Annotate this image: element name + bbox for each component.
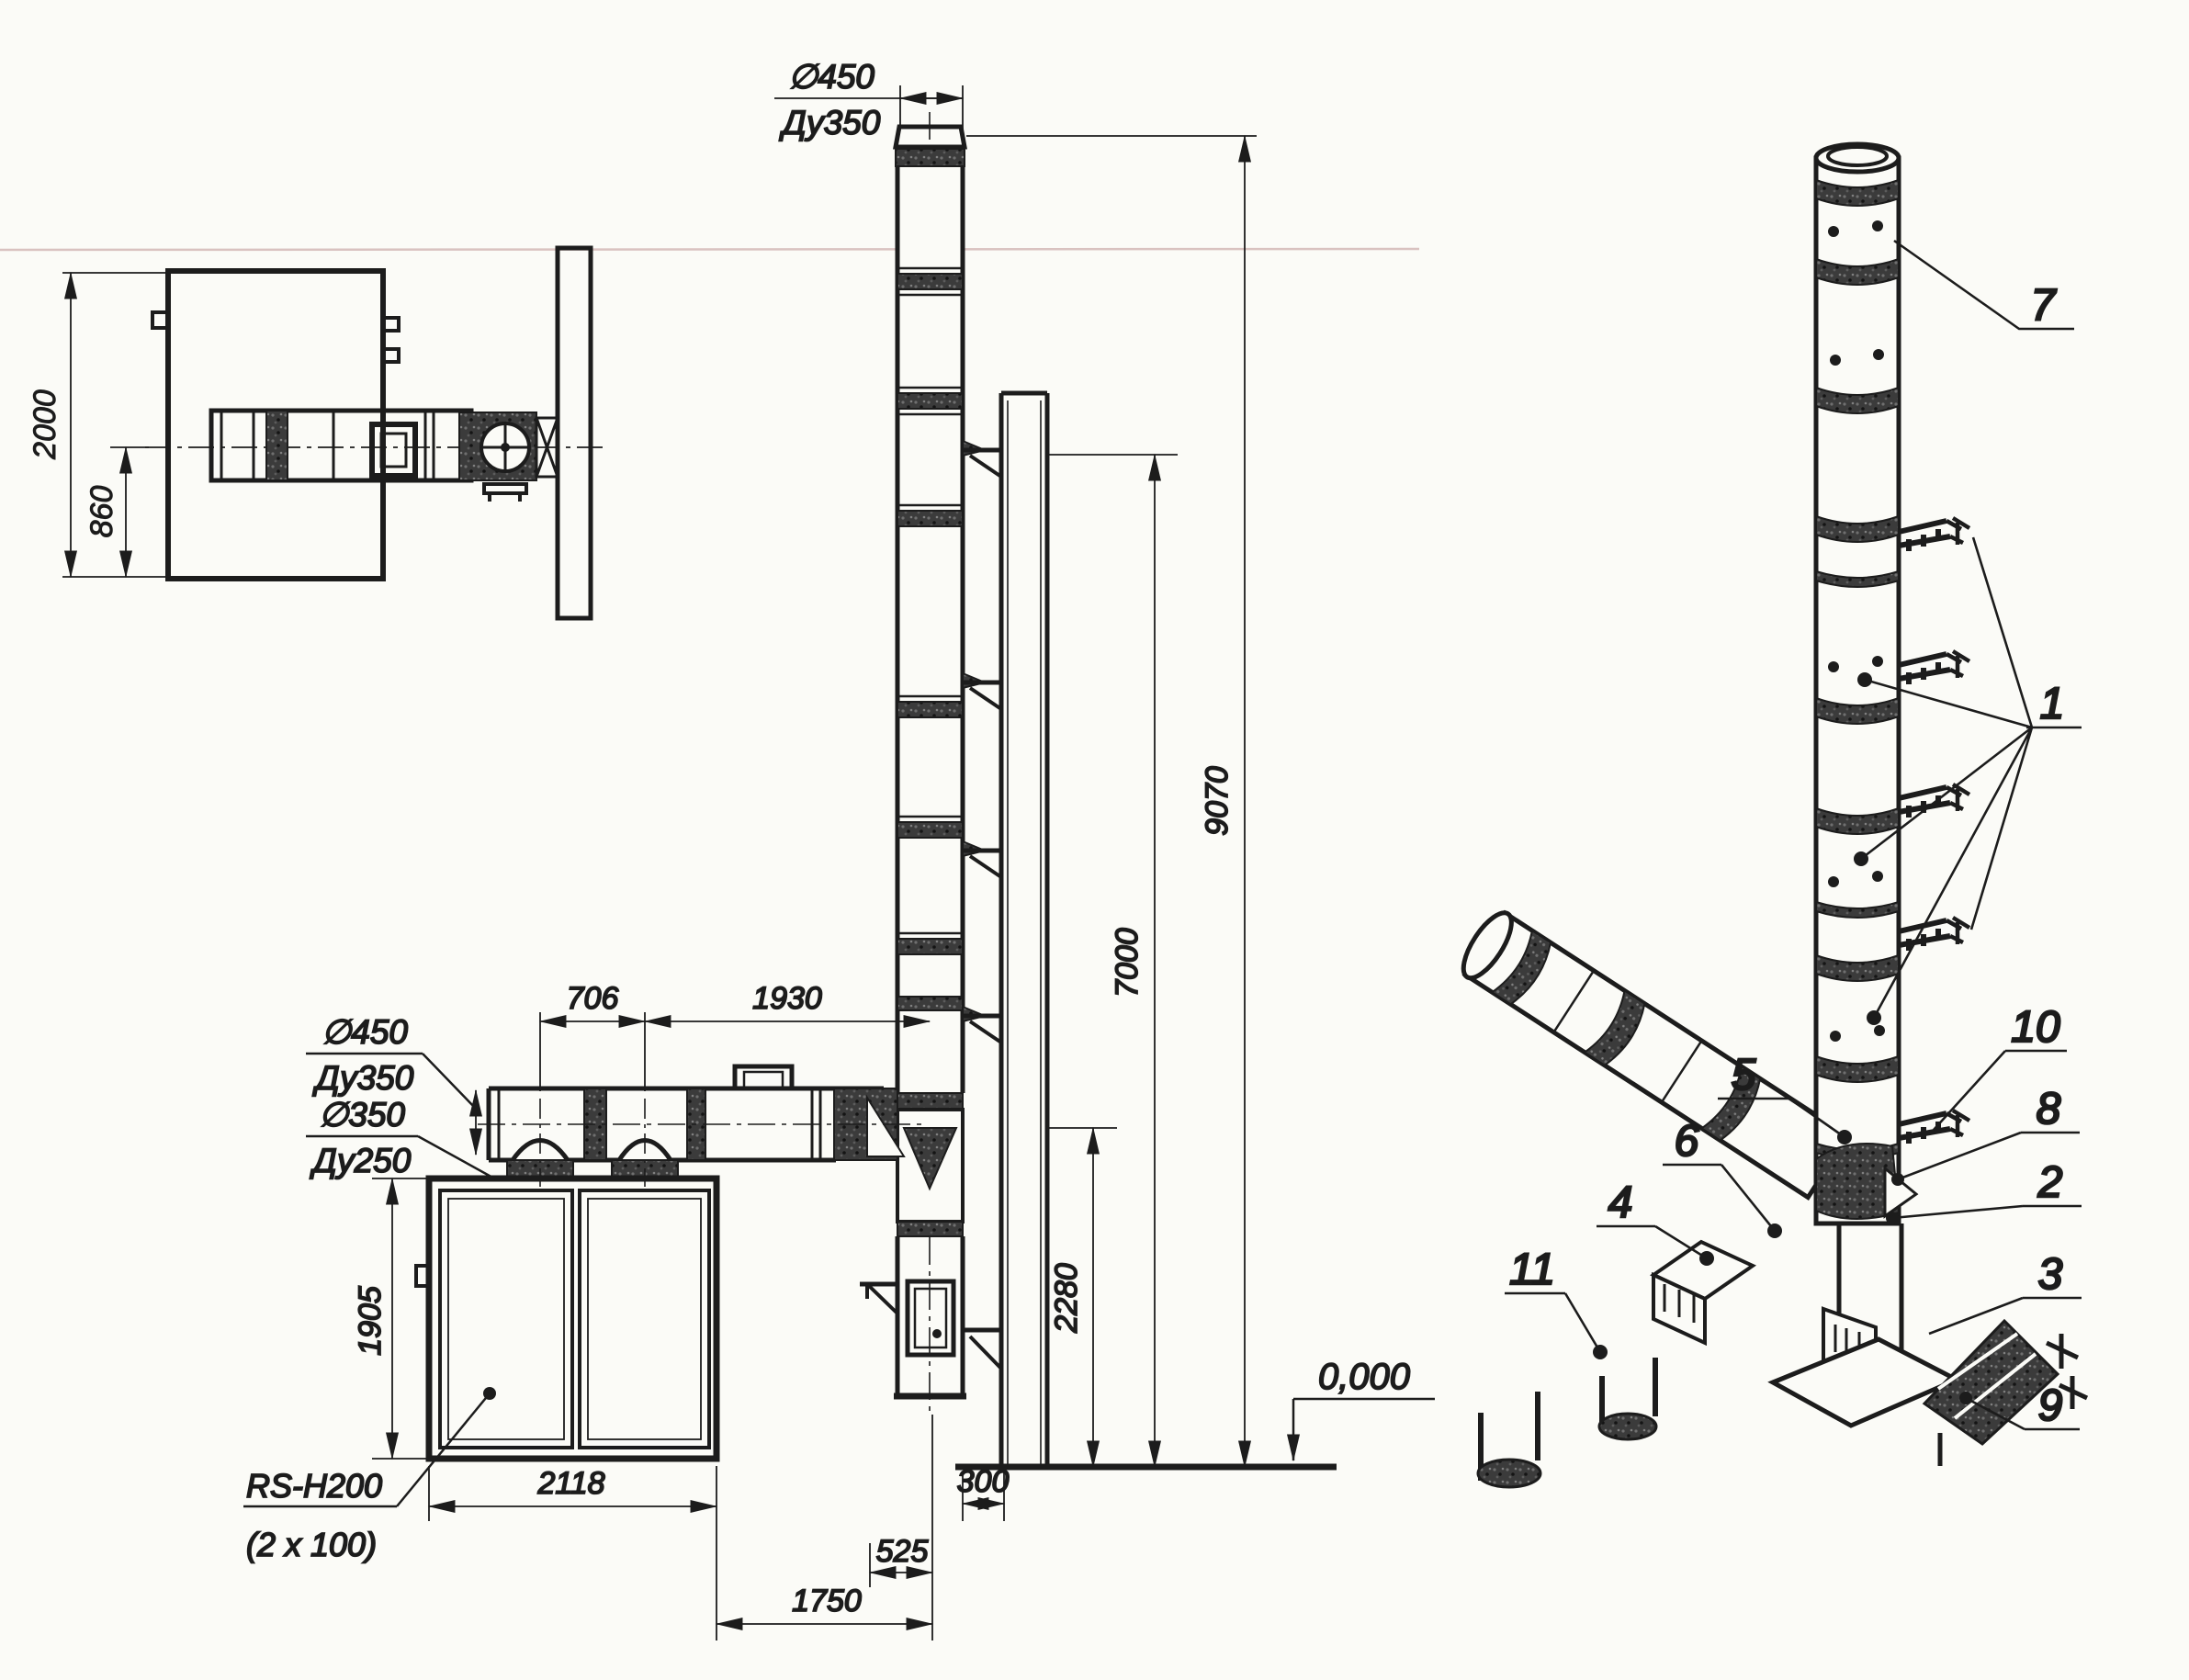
callout-10-label: 10 (2011, 1003, 2060, 1052)
callout-11-label: 11 (1509, 1246, 1555, 1294)
callout-4-label: 4 (1608, 1178, 1633, 1227)
dim-2118-label: 2118 (536, 1466, 604, 1501)
scan-artifact-line (0, 249, 1419, 250)
dim-1905-label: 1905 (353, 1286, 388, 1356)
elevation-view: ∅450 Ду350 706 1930 ∅450 Ду350 ∅350 Ду25… (243, 58, 1435, 1641)
callout-8-label: 8 (2037, 1085, 2061, 1133)
duct-dia-label: ∅450 (322, 1013, 408, 1051)
wall-bracket-3 (963, 841, 1001, 877)
elevation-dimensions: ∅450 Ду350 706 1930 ∅450 Ду350 ∅350 Ду25… (243, 58, 1435, 1641)
callout-9-label: 9 (2038, 1381, 2063, 1430)
callout-7-label: 7 (2031, 281, 2058, 330)
dim-9070-label: 9070 (1200, 766, 1235, 836)
duct-dia-du-label: Ду350 (312, 1059, 414, 1097)
boiler-door-right (580, 1190, 709, 1448)
plan-dim-2000-label: 2000 (28, 389, 62, 460)
dim-1750-label: 1750 (792, 1584, 862, 1618)
top-dia-label: ∅450 (788, 58, 874, 96)
plan-dim-860-label: 860 (85, 486, 119, 538)
plan-hatch-box (372, 424, 415, 476)
support-wall (1001, 393, 1047, 1467)
drawing-canvas: 2000 860 (0, 0, 2189, 1680)
iso-callouts: 7 1 10 5 6 4 (1505, 241, 2082, 1430)
level-zero-label: 0,000 (1318, 1357, 1410, 1397)
iso-bracket-4 (1899, 918, 1969, 951)
wall-bracket-1 (963, 441, 1001, 477)
callout-1-label: 1 (2040, 680, 2065, 728)
dim-525-label: 525 (876, 1534, 929, 1569)
dim-1930-label: 1930 (752, 981, 822, 1016)
iso-chimney (1816, 144, 1916, 1382)
iso-branch-duct (1455, 906, 1849, 1198)
plan-view: 2000 860 (28, 248, 608, 618)
boiler-front (416, 1178, 717, 1459)
plan-fan-foot (484, 484, 526, 493)
top-dia-du-label: Ду350 (779, 104, 881, 141)
callout-3-label: 3 (2038, 1250, 2063, 1299)
wall-bracket-2 (963, 673, 1001, 709)
iso-elbow-stubs (1478, 1358, 1656, 1487)
iso-bracket-2 (1899, 651, 1969, 684)
callout-6-label: 6 (1675, 1117, 1699, 1166)
boiler-door-left (440, 1190, 572, 1448)
isometric-view: 7 1 10 5 6 4 (1455, 144, 2087, 1487)
branch-dia-label: ∅350 (319, 1096, 405, 1133)
flue-duct (478, 1066, 923, 1187)
dim-7000-label: 7000 (1110, 928, 1145, 998)
branch-dia-du-label: Ду250 (310, 1142, 412, 1179)
boiler-model-label: RS-H200 (246, 1467, 382, 1505)
dim-300-label: 300 (957, 1464, 1010, 1499)
wall-bracket-4 (963, 1007, 1001, 1043)
iso-anchor-frame (1924, 1321, 2087, 1466)
iso-base-plate (1773, 1339, 1957, 1426)
iso-bracket-5 (1899, 1111, 1969, 1144)
chimney-cap-band (896, 149, 965, 166)
iso-bracket-1 (1899, 518, 1969, 551)
callout-2-label: 2 (2037, 1158, 2063, 1207)
boiler-config-label: (2 x 100) (246, 1526, 377, 1563)
iso-bracket-3 (1899, 784, 1969, 817)
plan-column (558, 248, 591, 618)
dim-2280-label: 2280 (1049, 1263, 1084, 1334)
dim-706-label: 706 (567, 981, 619, 1016)
callout-5-label: 5 (1732, 1051, 1756, 1099)
drawing-sheet: 2000 860 (0, 0, 2189, 1680)
